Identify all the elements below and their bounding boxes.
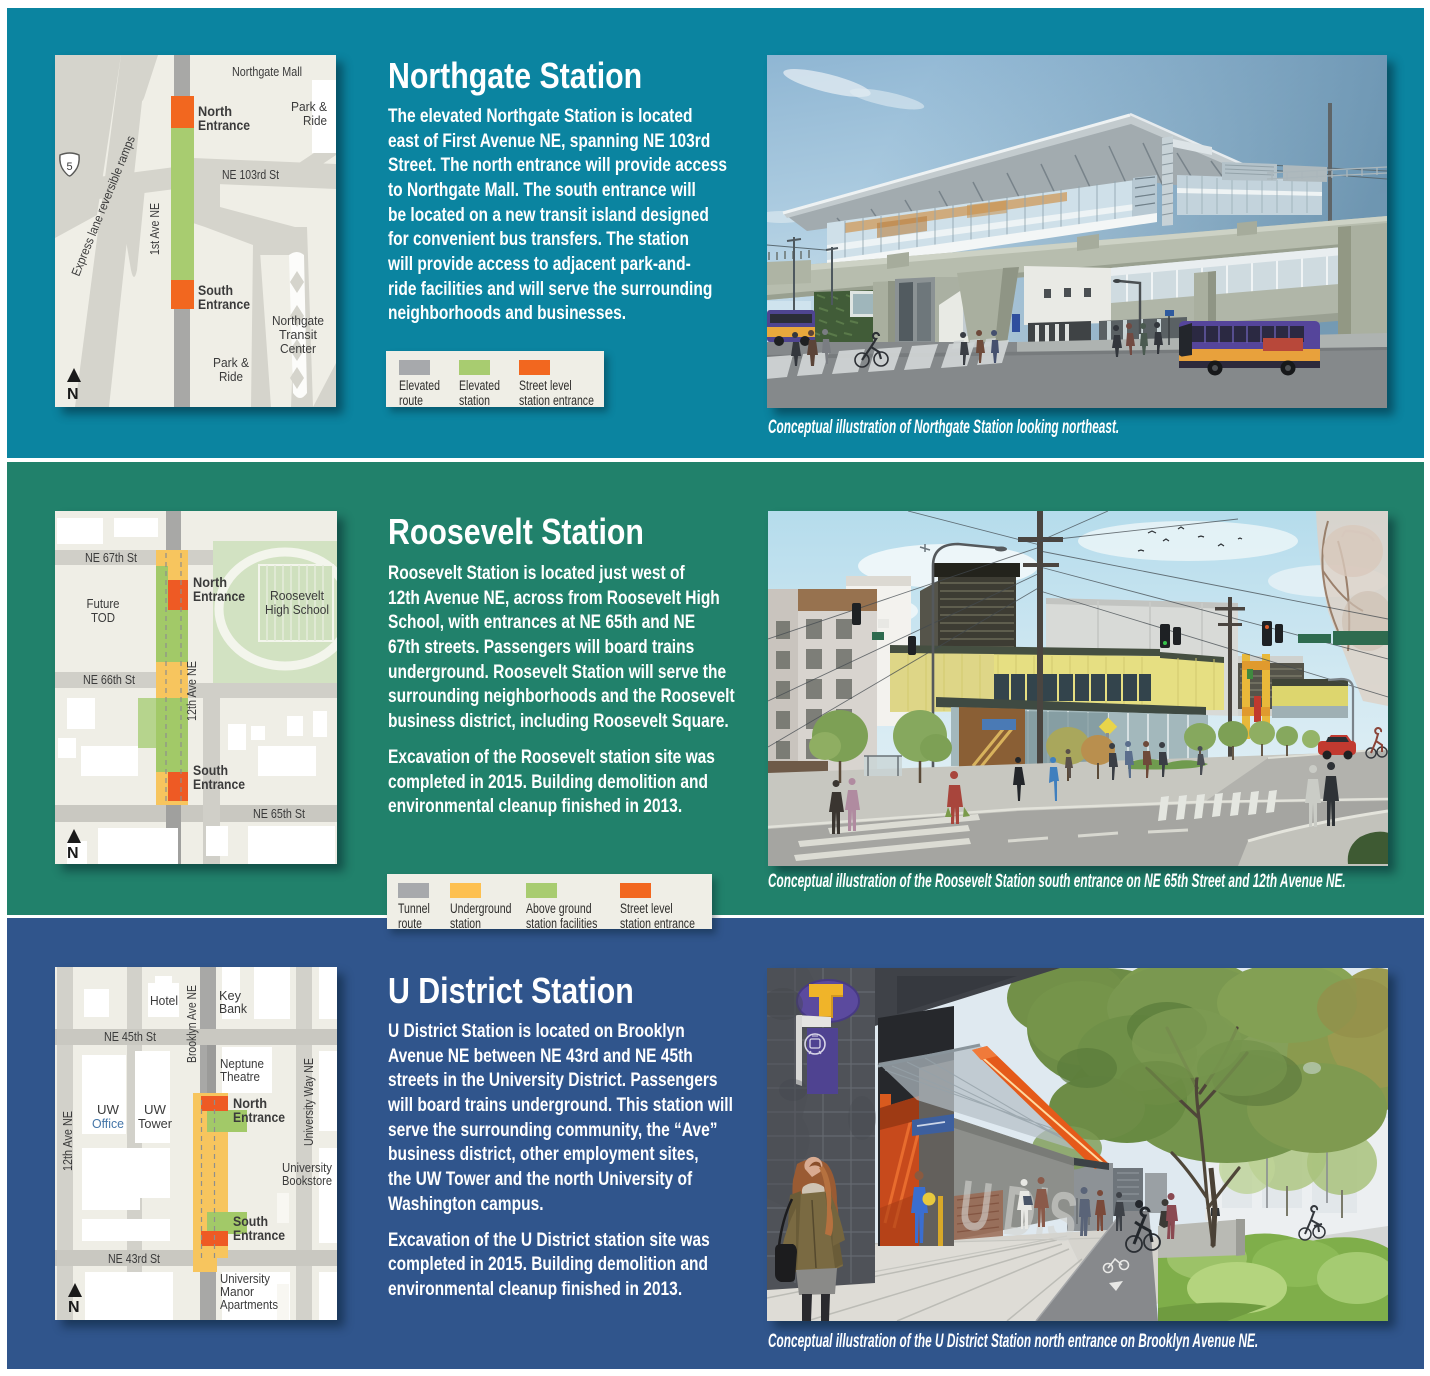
svg-text:12th Ave NE: 12th Ave NE [185,661,199,721]
svg-text:Northgate: Northgate [272,314,324,328]
svg-text:12th Ave NE: 12th Ave NE [61,1111,75,1171]
svg-text:University: University [282,1161,333,1175]
svg-text:UW: UW [144,1103,166,1117]
svg-text:University: University [220,1272,271,1286]
svg-text:5: 5 [66,161,72,173]
svg-text:N: N [68,1299,80,1316]
svg-text:Entrance: Entrance [233,1227,285,1243]
svg-text:Roosevelt: Roosevelt [270,589,325,603]
svg-text:Future: Future [87,597,120,611]
svg-text:Theatre: Theatre [220,1070,260,1084]
svg-text:UW: UW [97,1103,119,1117]
svg-text:Ride: Ride [303,114,327,128]
svg-text:Apartments: Apartments [220,1298,278,1312]
svg-text:TOD: TOD [91,611,115,625]
svg-text:Northgate Mall: Northgate Mall [232,65,302,79]
svg-text:Entrance: Entrance [193,588,245,604]
svg-text:University Way NE: University Way NE [302,1058,316,1146]
svg-text:Hotel: Hotel [150,994,178,1008]
svg-text:Neptune: Neptune [220,1057,264,1071]
svg-text:NE 103rd St: NE 103rd St [222,168,279,182]
svg-text:Center: Center [280,342,316,356]
svg-text:U DiS: U DiS [955,1165,1082,1257]
svg-text:Brooklyn Ave NE: Brooklyn Ave NE [185,985,199,1063]
svg-text:1st Ave NE: 1st Ave NE [148,203,162,255]
svg-text:Tower: Tower [138,1117,172,1131]
svg-text:Ride: Ride [219,370,243,384]
svg-text:High School: High School [265,603,329,617]
svg-text:NE 67th St: NE 67th St [85,551,137,565]
svg-text:Key: Key [219,989,242,1003]
svg-text:N: N [67,386,79,403]
svg-text:Entrance: Entrance [193,776,245,792]
svg-text:Manor: Manor [220,1285,254,1299]
svg-text:Bank: Bank [219,1002,248,1016]
svg-text:Park &: Park & [291,100,328,114]
svg-text:Bookstore: Bookstore [282,1174,332,1188]
svg-text:Entrance: Entrance [198,117,250,133]
svg-text:N: N [67,845,79,862]
svg-text:Transit: Transit [279,328,318,342]
svg-text:NE 66th St: NE 66th St [83,673,135,687]
svg-text:Entrance: Entrance [198,296,250,312]
svg-text:Park &: Park & [213,356,250,370]
svg-text:Entrance: Entrance [233,1109,285,1125]
svg-text:NE 43rd St: NE 43rd St [108,1252,160,1266]
svg-text:NE 45th St: NE 45th St [104,1030,156,1044]
svg-text:NE 65th St: NE 65th St [253,807,305,821]
svg-text:Office: Office [92,1117,124,1131]
